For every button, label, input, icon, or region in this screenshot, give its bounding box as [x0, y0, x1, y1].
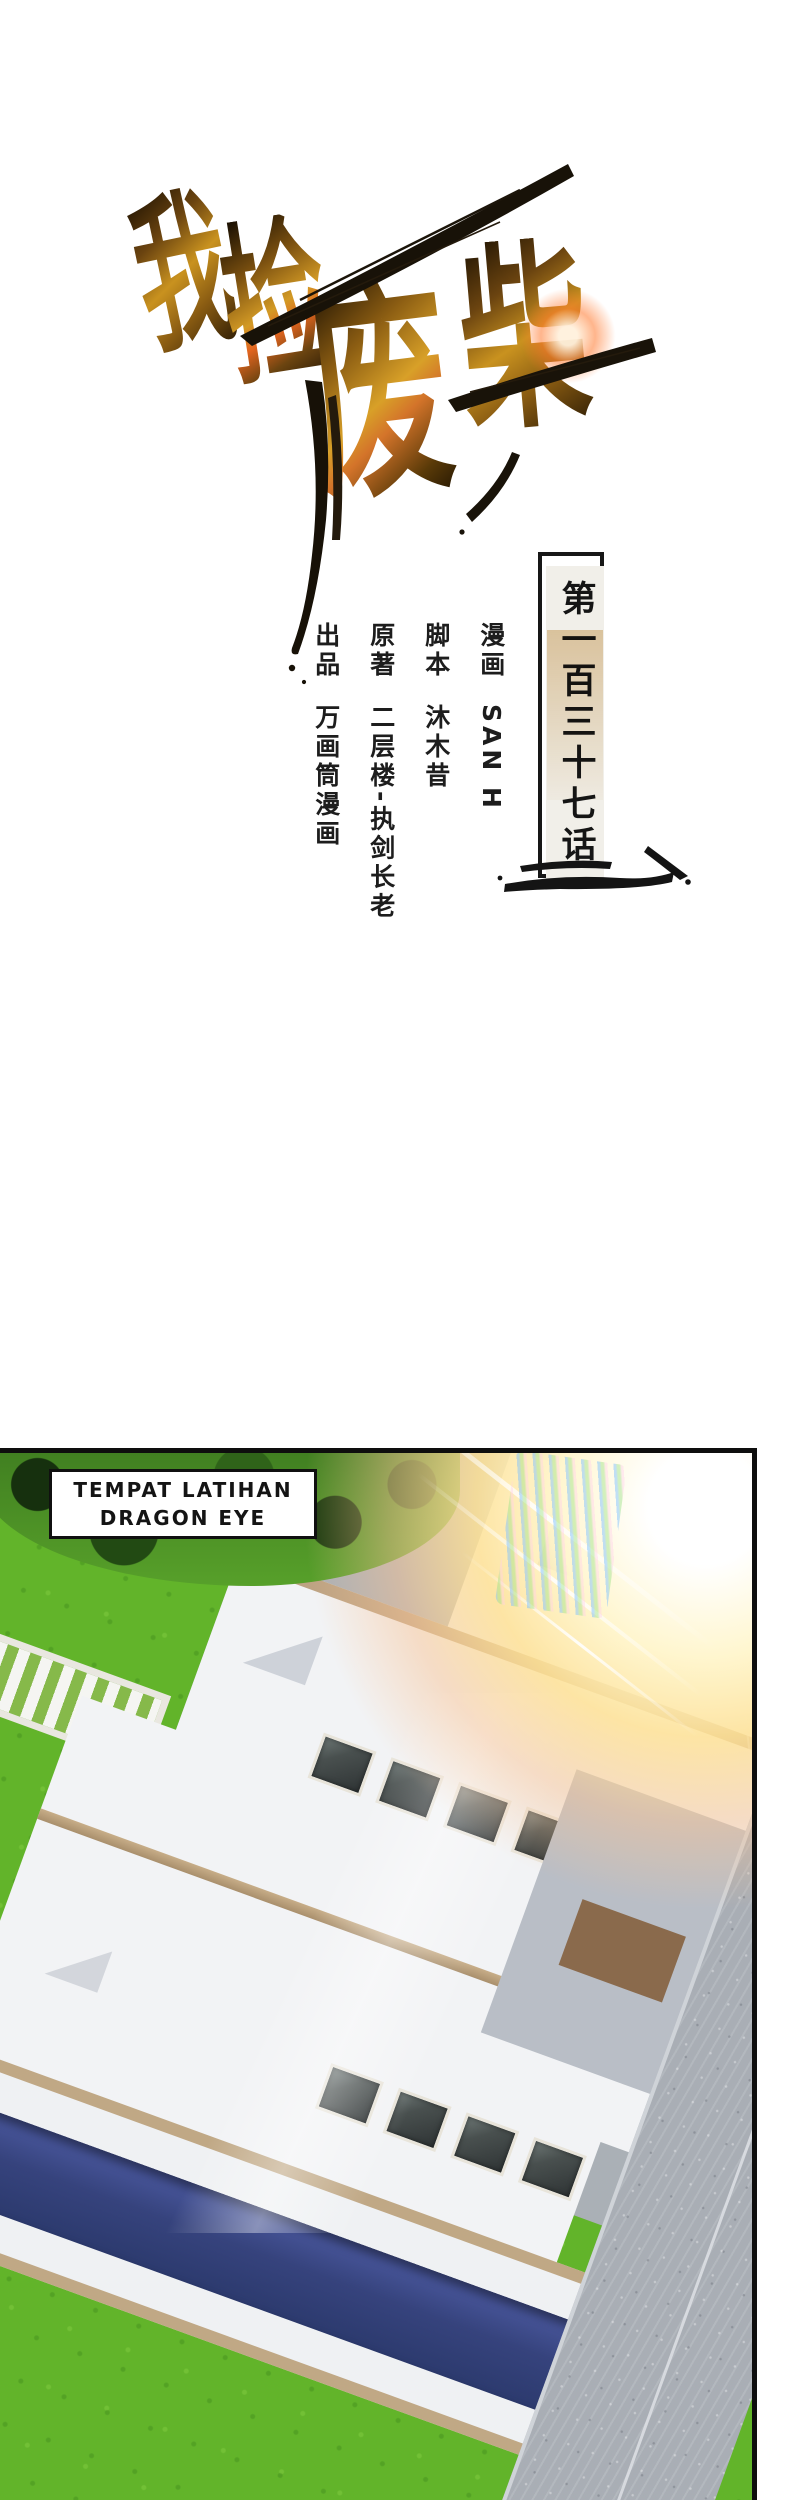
credit-label: 漫画: [477, 622, 506, 680]
credit-script: 脚本沐木昔: [421, 622, 450, 962]
credit-value: 沐木昔: [422, 704, 451, 791]
credit-art: 漫画SAN H: [476, 622, 505, 962]
title-ember-glow: [520, 288, 616, 384]
credit-value: 二层楼-执剑长老: [367, 704, 396, 921]
credit-label: 原著: [367, 622, 396, 680]
chapter-gold-tint: [547, 630, 603, 800]
prism-light-streaks: [495, 1450, 627, 1619]
credit-value: SAN H: [477, 704, 506, 812]
title-char-3: 废: [298, 271, 464, 516]
comic-panel: TEMPAT LATIHAN DRAGON EYE: [0, 1448, 757, 2500]
title-section: 我 捡 废 柴 漫: [0, 0, 800, 950]
credit-original: 原著二层楼-执剑长老: [366, 622, 395, 962]
caption-box: TEMPAT LATIHAN DRAGON EYE: [49, 1469, 317, 1539]
credit-label: 脚本: [422, 622, 451, 680]
caption-line-1: TEMPAT LATIHAN: [73, 1476, 292, 1504]
caption-line-2: DRAGON EYE: [100, 1504, 266, 1532]
credit-label: 出品: [312, 622, 341, 680]
credit-producer: 出品万画筒漫画: [311, 622, 340, 962]
comic-page: 我 捡 废 柴 漫: [0, 0, 800, 2500]
credit-value: 万画筒漫画: [312, 704, 341, 849]
